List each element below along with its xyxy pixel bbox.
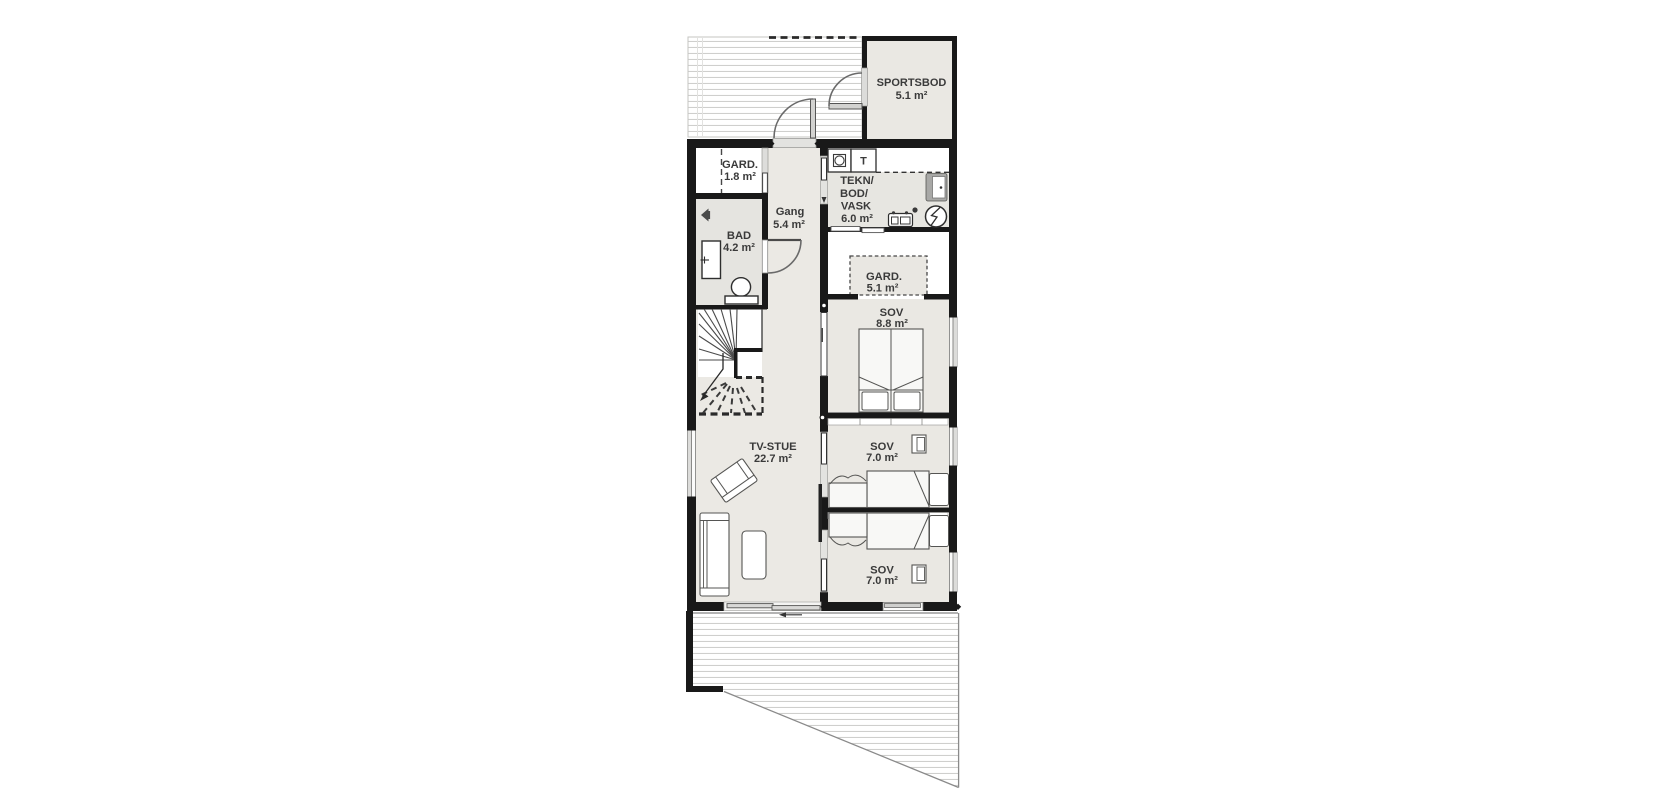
svg-text:7.0 m²: 7.0 m² xyxy=(866,575,898,587)
svg-text:1.8 m²: 1.8 m² xyxy=(724,171,756,183)
svg-text:5.1 m²: 5.1 m² xyxy=(896,90,928,102)
svg-text:BOD/: BOD/ xyxy=(840,188,868,200)
svg-text:GARD.: GARD. xyxy=(866,271,902,283)
svg-text:BAD: BAD xyxy=(727,230,751,242)
svg-text:6.0 m²: 6.0 m² xyxy=(841,213,873,225)
svg-text:5.1 m²: 5.1 m² xyxy=(867,283,899,295)
svg-text:T: T xyxy=(860,156,867,168)
svg-text:TEKN/: TEKN/ xyxy=(840,175,874,187)
svg-text:22.7 m²: 22.7 m² xyxy=(754,453,792,465)
svg-text:GARD.: GARD. xyxy=(722,159,758,171)
svg-text:5.4 m²: 5.4 m² xyxy=(773,219,805,231)
svg-text:Gang: Gang xyxy=(776,206,805,218)
svg-text:8.8 m²: 8.8 m² xyxy=(876,318,908,330)
svg-text:7.0 m²: 7.0 m² xyxy=(866,452,898,464)
svg-text:SPORTSBOD: SPORTSBOD xyxy=(877,77,947,89)
svg-text:TV-STUE: TV-STUE xyxy=(749,441,797,453)
svg-text:VASK: VASK xyxy=(841,201,871,213)
svg-text:4.2 m²: 4.2 m² xyxy=(723,242,755,254)
